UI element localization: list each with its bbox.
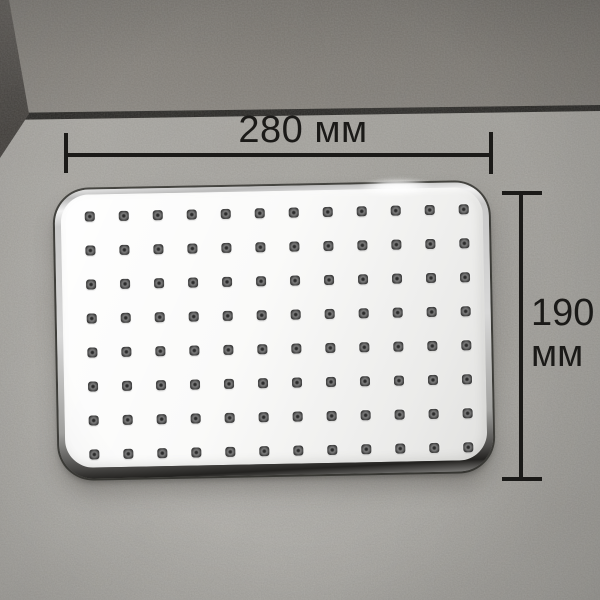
nozzle (327, 445, 337, 455)
width-dimension-label: 280 мм (153, 109, 453, 152)
nozzle (225, 413, 235, 423)
nozzle (291, 343, 301, 353)
nozzle (122, 381, 132, 391)
nozzle (394, 376, 404, 386)
height-dimension-value: 190 (531, 293, 594, 334)
nozzle (292, 377, 302, 387)
nozzle (119, 245, 129, 255)
nozzle (429, 409, 439, 419)
nozzle (221, 243, 231, 253)
nozzle (360, 376, 370, 386)
nozzle (257, 310, 267, 320)
height-dimension-tick-bottom (502, 477, 542, 481)
height-dimension-line (519, 191, 523, 481)
width-dimension-tick-right (489, 132, 493, 174)
width-dimension-line (64, 153, 493, 157)
nozzle (462, 374, 472, 384)
nozzle (187, 209, 197, 219)
nozzle (154, 278, 164, 288)
nozzle (326, 377, 336, 387)
nozzle (88, 381, 98, 391)
nozzle (123, 415, 133, 425)
nozzle (153, 210, 163, 220)
nozzle (121, 313, 131, 323)
nozzle (89, 449, 99, 459)
nozzle (395, 444, 405, 454)
nozzle (189, 345, 199, 355)
nozzle (463, 408, 473, 418)
nozzle (425, 205, 435, 215)
nozzle (259, 446, 269, 456)
nozzle (87, 347, 97, 357)
nozzle (426, 273, 436, 283)
nozzle (289, 241, 299, 251)
nozzle (357, 206, 367, 216)
nozzle (120, 279, 130, 289)
nozzle (392, 274, 402, 284)
nozzle (191, 447, 201, 457)
nozzle (323, 241, 333, 251)
nozzle (325, 343, 335, 353)
nozzle (425, 239, 435, 249)
nozzle-grid (72, 192, 485, 472)
nozzle (429, 443, 439, 453)
nozzle (225, 447, 235, 457)
nozzle (119, 211, 129, 221)
nozzle (325, 309, 335, 319)
width-dimension-tick-left (64, 133, 68, 173)
nozzle (190, 379, 200, 389)
height-dimension-unit: мм (531, 334, 594, 375)
nozzle (427, 307, 437, 317)
nozzle (191, 413, 201, 423)
nozzle (221, 209, 231, 219)
nozzle (461, 306, 471, 316)
nozzle (87, 313, 97, 323)
nozzle (89, 415, 99, 425)
height-dimension-label: 190 мм (531, 293, 594, 375)
nozzle (85, 211, 95, 221)
nozzle (391, 240, 401, 250)
nozzle (393, 342, 403, 352)
nozzle (393, 308, 403, 318)
nozzle (155, 346, 165, 356)
nozzle (121, 347, 131, 357)
nozzle (460, 272, 470, 282)
nozzle (324, 275, 334, 285)
height-dimension-tick-top (502, 191, 542, 195)
nozzle (289, 208, 299, 218)
nozzle (461, 340, 471, 350)
nozzle (293, 445, 303, 455)
nozzle (222, 277, 232, 287)
nozzle (256, 276, 266, 286)
nozzle (361, 444, 371, 454)
nozzle (155, 312, 165, 322)
concrete-back-wall (0, 0, 600, 120)
nozzle (323, 207, 333, 217)
nozzle (188, 277, 198, 287)
nozzle (459, 238, 469, 248)
nozzle (293, 411, 303, 421)
nozzle (395, 410, 405, 420)
scene: 280 мм 190 мм (0, 0, 600, 600)
nozzle (157, 448, 167, 458)
nozzle (255, 242, 265, 252)
nozzle (223, 311, 233, 321)
nozzle (463, 442, 473, 452)
nozzle (358, 274, 368, 284)
nozzle (224, 379, 234, 389)
nozzle (359, 342, 369, 352)
nozzle (157, 414, 167, 424)
nozzle (257, 344, 267, 354)
nozzle (459, 204, 469, 214)
nozzle (255, 208, 265, 218)
nozzle (361, 410, 371, 420)
nozzle (258, 378, 268, 388)
nozzle (187, 243, 197, 253)
nozzle (391, 206, 401, 216)
nozzle (189, 311, 199, 321)
nozzle (427, 341, 437, 351)
nozzle (290, 275, 300, 285)
nozzle (153, 244, 163, 254)
nozzle (359, 308, 369, 318)
nozzle (357, 240, 367, 250)
nozzle (156, 380, 166, 390)
shower-head (54, 182, 493, 479)
nozzle (86, 279, 96, 289)
nozzle (85, 245, 95, 255)
nozzle (428, 375, 438, 385)
nozzle (223, 345, 233, 355)
nozzle (327, 411, 337, 421)
nozzle (123, 449, 133, 459)
nozzle (259, 412, 269, 422)
nozzle (291, 309, 301, 319)
